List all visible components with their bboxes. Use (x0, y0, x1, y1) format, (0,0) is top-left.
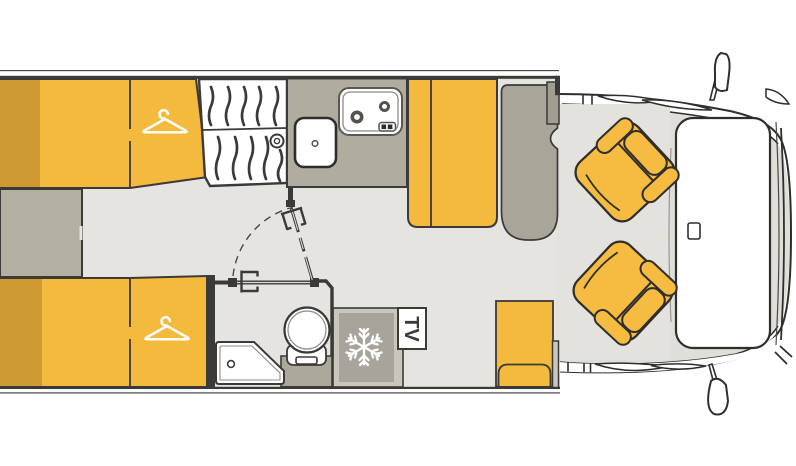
svg-text:TV: TV (400, 316, 422, 342)
